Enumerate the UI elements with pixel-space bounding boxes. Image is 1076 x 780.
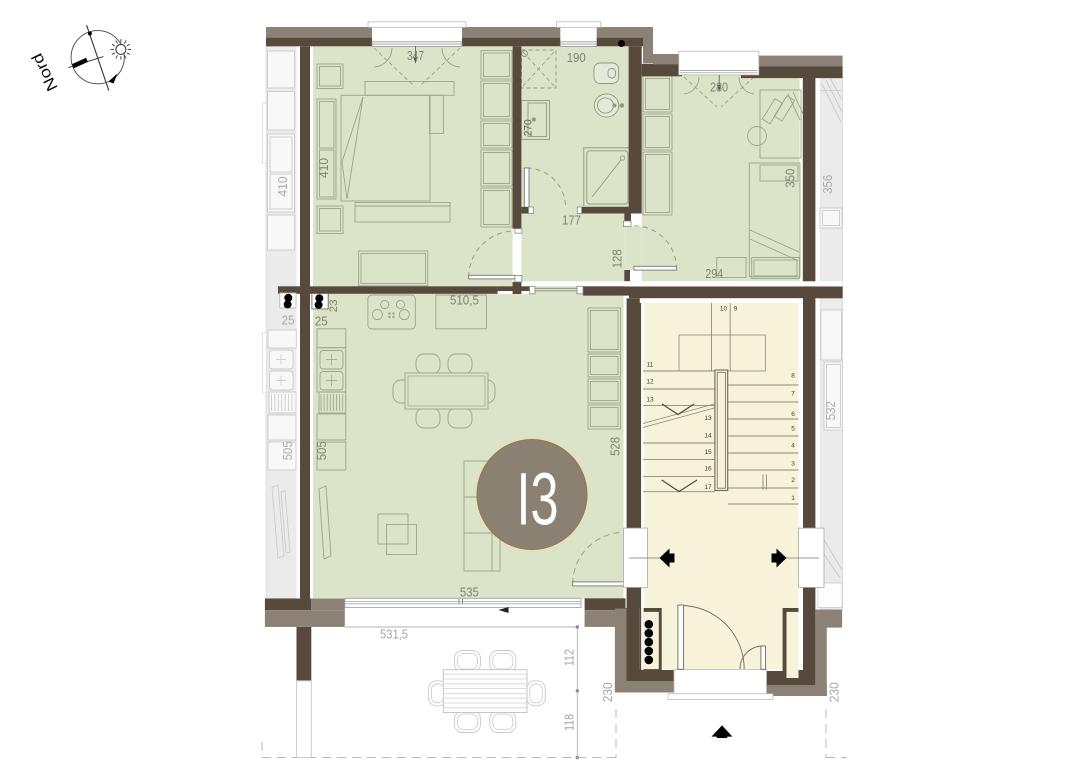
svg-text:14: 14 (704, 433, 712, 440)
svg-text:16: 16 (704, 466, 712, 473)
svg-text:13: 13 (704, 415, 712, 422)
svg-text:230: 230 (601, 682, 615, 702)
svg-text:190: 190 (567, 51, 586, 65)
svg-text:10: 10 (720, 306, 728, 313)
svg-text:118: 118 (563, 714, 577, 731)
svg-text:350: 350 (784, 169, 798, 188)
svg-text:11: 11 (647, 362, 654, 369)
svg-text:4: 4 (791, 443, 795, 450)
svg-text:112: 112 (563, 649, 577, 666)
svg-text:510,5: 510,5 (450, 294, 479, 308)
svg-text:531,5: 531,5 (380, 627, 408, 641)
svg-text:356: 356 (821, 175, 835, 194)
svg-text:15: 15 (704, 449, 712, 456)
svg-text:23: 23 (328, 299, 340, 312)
svg-text:8: 8 (791, 373, 795, 380)
svg-text:230: 230 (828, 682, 842, 702)
svg-text:5: 5 (791, 426, 795, 433)
svg-text:128: 128 (610, 249, 624, 268)
svg-text:410: 410 (276, 176, 290, 196)
svg-text:528: 528 (609, 437, 623, 456)
svg-text:280: 280 (710, 81, 728, 95)
svg-text:3: 3 (791, 461, 795, 468)
svg-text:270: 270 (523, 119, 535, 136)
svg-text:13: 13 (646, 397, 654, 404)
svg-text:17: 17 (704, 484, 712, 491)
svg-text:12: 12 (646, 379, 654, 386)
svg-text:6: 6 (791, 411, 795, 418)
svg-text:I3: I3 (517, 458, 559, 541)
svg-text:7: 7 (791, 391, 795, 398)
svg-text:535: 535 (460, 585, 479, 599)
svg-text:505: 505 (281, 441, 295, 460)
svg-text:25: 25 (315, 314, 328, 328)
svg-text:1: 1 (791, 495, 795, 502)
svg-text:9: 9 (734, 306, 738, 313)
svg-text:410: 410 (317, 158, 331, 178)
svg-text:532: 532 (824, 401, 838, 420)
svg-text:2: 2 (791, 477, 795, 484)
svg-text:505: 505 (315, 441, 329, 460)
svg-text:294: 294 (705, 267, 723, 281)
svg-text:347: 347 (407, 49, 424, 63)
svg-text:25: 25 (282, 313, 295, 327)
svg-text:177: 177 (562, 213, 581, 227)
